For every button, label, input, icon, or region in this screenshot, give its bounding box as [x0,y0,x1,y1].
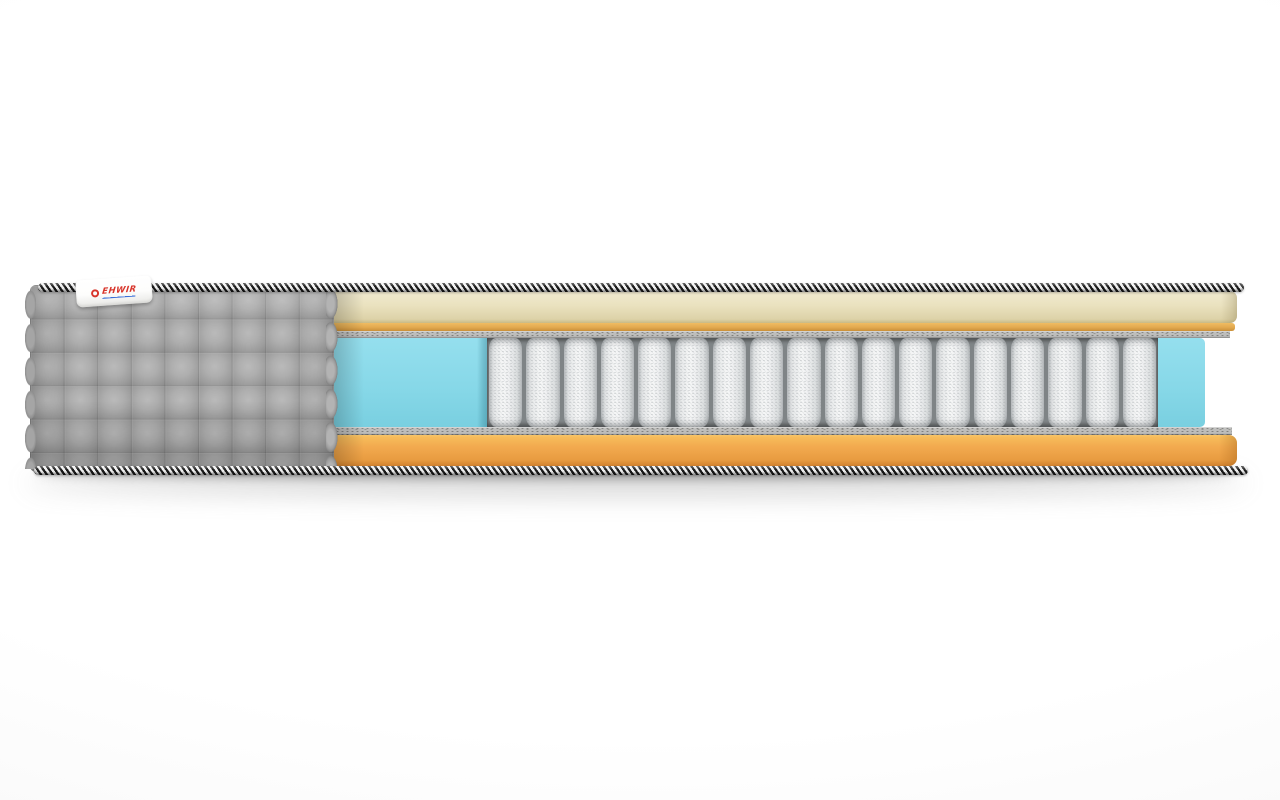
spring-coil [489,338,522,427]
edge-piping-top [38,283,1244,292]
spring-coil [675,338,708,427]
cover-cut-right-edge [326,287,338,470]
spring-coil [1123,338,1156,427]
layer-thin-orange-foam [325,323,1235,331]
spring-coil [713,338,746,427]
mattress-cutaway-render: EHWIR [30,283,1242,475]
foam-side-border-right [1158,338,1205,427]
brand-logo-icon [91,289,100,298]
spring-coil [638,338,671,427]
brand-label-text: EHWIR [102,285,137,297]
foam-side-border-left-face [477,338,487,427]
layer-soft-foam-top [325,291,1237,323]
spring-coil [526,338,559,427]
layer-spring-unit [325,338,1205,427]
spring-coil [1048,338,1081,427]
spring-coil [1011,338,1044,427]
spring-coil [564,338,597,427]
layer-base-foam [325,435,1237,466]
spring-coil [787,338,820,427]
spring-coil [825,338,858,427]
spring-coil [601,338,634,427]
quilted-cover [30,285,334,472]
spring-coil [936,338,969,427]
layer-soft-foam-right-face [1221,291,1237,323]
brand-label-tag: EHWIR [75,275,153,307]
edge-piping-bottom [34,466,1248,475]
layer-base-foam-right-face [1219,435,1237,466]
spring-coil [974,338,1007,427]
spring-coil [1086,338,1119,427]
cover-shading [30,285,334,472]
spring-coil [862,338,895,427]
spring-coil [899,338,932,427]
layer-felt-top [325,331,1230,338]
pocket-springs [487,338,1158,427]
scene: EHWIR [0,0,1280,800]
cover-scalloped-left-edge [24,288,36,469]
spring-coil [750,338,783,427]
layer-felt-bottom [325,427,1232,435]
